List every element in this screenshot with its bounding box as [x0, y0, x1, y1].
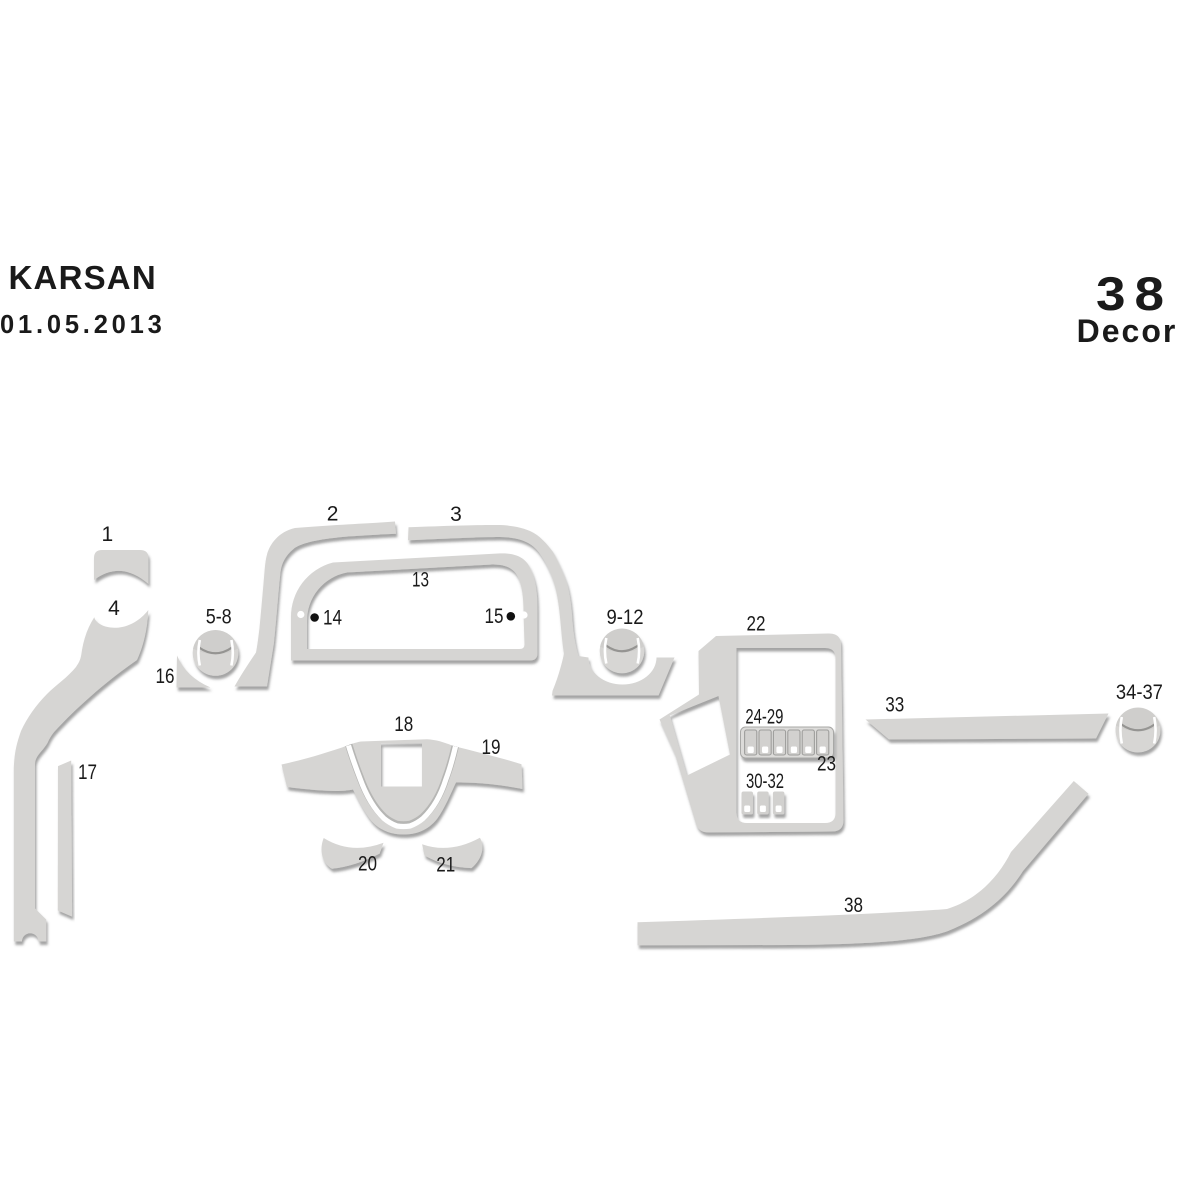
svg-text:24-29: 24-29 — [745, 705, 783, 728]
svg-text:15: 15 — [485, 605, 504, 628]
svg-text:KARSAN: KARSAN — [9, 259, 157, 296]
svg-text:Decor: Decor — [1077, 313, 1178, 349]
svg-text:34-37: 34-37 — [1116, 681, 1163, 704]
svg-text:14: 14 — [323, 607, 342, 630]
svg-text:16: 16 — [156, 665, 175, 688]
svg-text:5-8: 5-8 — [206, 606, 232, 629]
svg-text:01.05.2013: 01.05.2013 — [0, 311, 166, 339]
svg-text:20: 20 — [358, 853, 377, 876]
svg-text:2: 2 — [327, 503, 339, 526]
svg-text:21: 21 — [436, 854, 455, 877]
svg-text:17: 17 — [78, 761, 97, 784]
svg-text:38: 38 — [844, 894, 863, 917]
svg-text:22: 22 — [747, 613, 766, 636]
svg-text:33: 33 — [885, 694, 904, 717]
svg-text:18: 18 — [394, 713, 413, 736]
svg-text:3: 3 — [450, 503, 462, 526]
svg-text:4: 4 — [108, 597, 120, 620]
svg-text:23: 23 — [817, 753, 836, 776]
svg-text:19: 19 — [482, 736, 501, 759]
svg-text:9-12: 9-12 — [607, 606, 644, 629]
svg-text:30-32: 30-32 — [746, 770, 784, 793]
svg-text:13: 13 — [412, 569, 429, 592]
svg-text:1: 1 — [101, 523, 113, 546]
